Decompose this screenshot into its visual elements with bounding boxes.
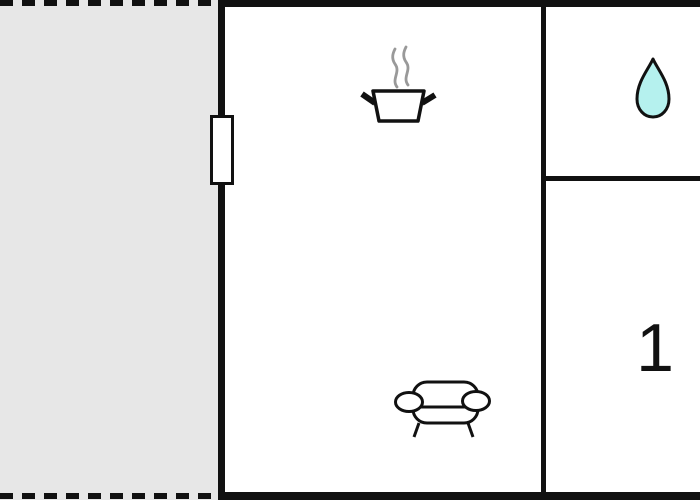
terrace-dashed-edge-top <box>0 0 218 6</box>
terrace-dashed-edge-bottom <box>0 493 218 499</box>
water-drop-shape <box>637 59 669 117</box>
pot-body <box>373 91 424 121</box>
terrace-area <box>0 0 218 500</box>
water-drop-icon <box>633 56 673 122</box>
sofa-leg-right <box>468 423 473 437</box>
sofa-leg-left <box>414 423 419 437</box>
wall-left <box>218 0 225 500</box>
steam-line-left <box>393 49 397 87</box>
bedroom-number-label: 1 <box>631 314 679 382</box>
wall-interior-horizontal <box>541 176 700 181</box>
cooking-pot-icon <box>356 38 440 126</box>
steam-line-right <box>404 47 408 85</box>
window-marker <box>210 115 234 185</box>
sofa-icon <box>392 377 494 441</box>
wall-bottom <box>218 492 700 500</box>
room-bathroom <box>546 7 700 176</box>
wall-top <box>218 0 700 7</box>
sofa-armrest-right <box>463 392 490 411</box>
sofa-armrest-left <box>396 393 423 412</box>
wall-interior-vertical <box>541 0 546 500</box>
floorplan-canvas: 1 <box>0 0 700 500</box>
